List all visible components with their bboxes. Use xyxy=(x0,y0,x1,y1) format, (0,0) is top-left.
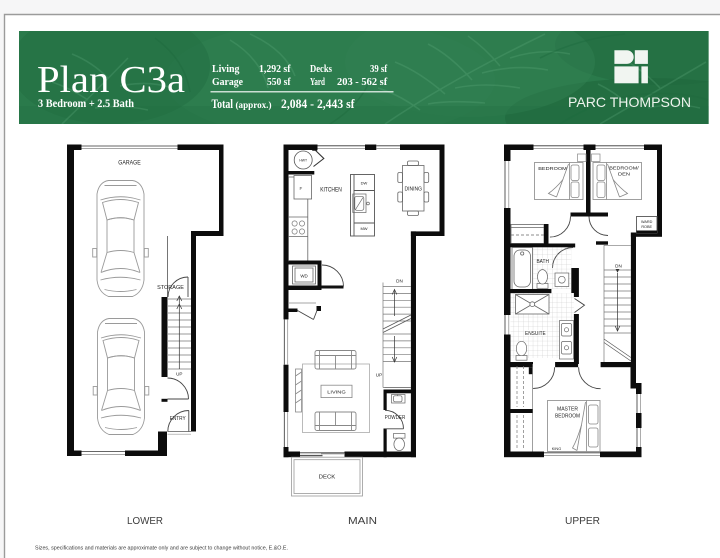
svg-text:BATH: BATH xyxy=(536,259,549,265)
svg-text:MAIN: MAIN xyxy=(348,516,377,527)
svg-text:550 sf: 550 sf xyxy=(267,76,291,88)
svg-text:MW: MW xyxy=(360,226,367,231)
svg-text:WARD: WARD xyxy=(641,220,653,224)
svg-text:KITCHEN: KITCHEN xyxy=(320,188,342,194)
svg-text:UP: UP xyxy=(376,373,382,378)
svg-text:Total: Total xyxy=(212,97,234,111)
svg-text:3 Bedroom + 2.5 Bath: 3 Bedroom + 2.5 Bath xyxy=(38,97,134,110)
svg-text:Garage: Garage xyxy=(212,76,243,88)
svg-text:DN: DN xyxy=(615,264,622,269)
svg-text:KING: KING xyxy=(552,447,562,451)
svg-text:BEDROOM: BEDROOM xyxy=(555,414,580,420)
svg-text:LOWER: LOWER xyxy=(127,516,163,527)
svg-text:Decks: Decks xyxy=(310,63,333,75)
svg-text:DECK: DECK xyxy=(319,475,336,481)
svg-text:MASTER: MASTER xyxy=(557,407,578,413)
svg-text:BEDROOM: BEDROOM xyxy=(538,166,567,171)
svg-text:ENTRY: ENTRY xyxy=(170,416,187,422)
svg-text:UPPER: UPPER xyxy=(565,516,600,527)
svg-text:ENSUITE: ENSUITE xyxy=(525,331,546,337)
svg-text:LIVING: LIVING xyxy=(327,390,346,396)
svg-text:DEN: DEN xyxy=(618,172,630,177)
svg-text:WD: WD xyxy=(300,274,307,279)
svg-text:POWDER: POWDER xyxy=(385,415,406,421)
svg-text:DW: DW xyxy=(361,181,368,186)
svg-text:203 - 562 sf: 203 - 562 sf xyxy=(337,76,388,88)
svg-text:PARC THOMPSON: PARC THOMPSON xyxy=(568,95,691,110)
svg-text:DN: DN xyxy=(396,279,403,284)
svg-text:DINING: DINING xyxy=(405,187,423,193)
svg-text:BEDROOM/: BEDROOM/ xyxy=(609,166,639,171)
svg-text:ROBE: ROBE xyxy=(641,225,652,229)
svg-text:UP: UP xyxy=(176,372,182,377)
svg-text:Living: Living xyxy=(212,63,240,75)
svg-text:Sizes, specifications and mate: Sizes, specifications and materials are … xyxy=(35,546,288,552)
svg-text:39 sf: 39 sf xyxy=(370,63,387,75)
svg-text:Yard: Yard xyxy=(310,76,325,88)
svg-text:GARAGE: GARAGE xyxy=(118,161,141,167)
svg-text:2,084 - 2,443 sf: 2,084 - 2,443 sf xyxy=(281,97,355,111)
svg-text:HWT: HWT xyxy=(299,159,307,163)
svg-text:1,292 sf: 1,292 sf xyxy=(259,63,291,75)
svg-text:(approx.): (approx.) xyxy=(236,100,272,111)
svg-text:Plan C3a: Plan C3a xyxy=(37,59,185,101)
svg-text:F: F xyxy=(300,186,303,191)
